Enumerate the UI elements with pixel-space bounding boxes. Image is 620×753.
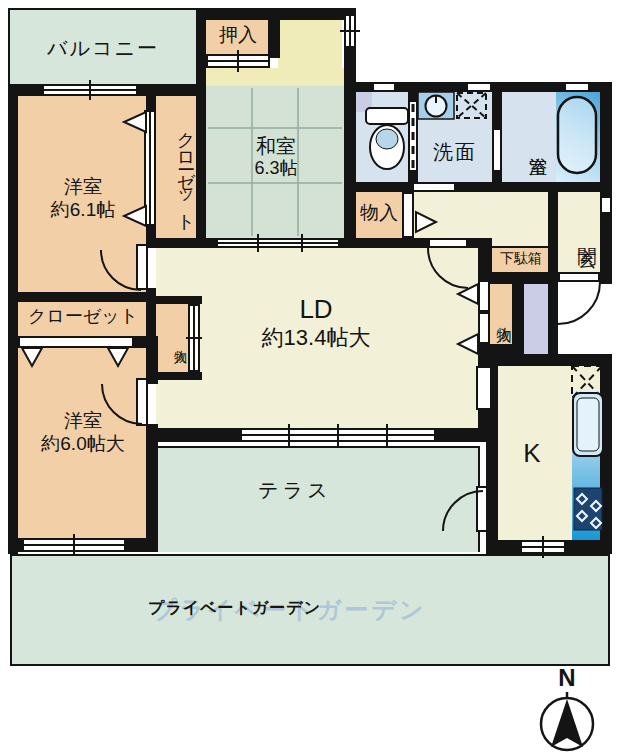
wall [8,84,18,554]
bedroom2-name: 洋室 [20,410,146,433]
living-name: LD [166,294,466,325]
storage-hall-door-symbol [402,192,414,238]
sliding-door-symbol [216,238,340,248]
door-leaf [476,486,488,532]
washroom-label: 洗面 [418,140,492,164]
storage-right-label: 物入 [489,286,513,344]
window-symbol [344,14,356,48]
closet1-label: クローゼット [158,102,196,238]
wall [196,96,206,246]
garden-label: プライベートガーデン [148,598,321,617]
wall [8,292,148,302]
window-symbol [520,540,566,554]
living-label: LD 約13.4帖大 [166,294,466,352]
wall [196,8,206,96]
kitchen-counter [572,390,600,540]
wall [600,82,612,284]
window-symbol [42,84,138,96]
genkan-label: 玄関 [562,198,598,268]
washitsu-label: 和室 6.3帖 [230,134,322,180]
washitsu-name: 和室 [230,134,322,158]
wall [486,354,612,366]
window-symbol [600,196,612,214]
bedroom1-label: 洋室 約6.1帖 [20,176,146,222]
kitchen-opening [476,366,492,410]
bedroom2-size: 約6.0帖大 [20,433,146,456]
window-symbol [466,82,492,92]
wall [478,272,558,284]
entry-door-leaf [558,272,600,282]
bedroom1-size: 約6.1帖 [20,199,146,222]
bedroom1-name: 洋室 [20,176,146,199]
closet2-label: クローゼット [18,306,148,328]
north-arrow [541,692,593,750]
wall [344,182,612,192]
toilet-duct [356,92,372,112]
washitsu-edge-strip [206,68,344,86]
kitchen-label: K [500,438,564,469]
washroom-door-symbol [412,182,456,192]
wall [492,172,502,184]
washitsu-size: 6.3帖 [230,158,322,180]
window-symbol [240,428,436,442]
wall [600,354,612,554]
closet2-door-symbol [18,336,134,348]
north-label: N [553,664,581,693]
floor-plan: バルコニー 押入 和室 6.3帖 洋室 約6.1帖 クローゼット 洗面 浴室 玄… [0,0,620,753]
wall [146,424,158,552]
washroom-area [418,92,492,182]
living-size: 約13.4帖大 [166,325,466,351]
bathroom-door-symbol [492,128,502,172]
terrace-label: テラス [200,478,390,502]
pipe-space [524,284,548,354]
window-symbol [564,82,590,92]
sliding-door-symbol [206,54,270,68]
bedroom2-label: 洋室 約6.0帖大 [20,410,146,456]
window-symbol [372,82,396,92]
getabako-label: 下駄箱 [490,250,552,267]
wall [492,92,502,128]
bathtub-zone [556,92,600,182]
door-leaf [136,244,148,290]
toilet-door-symbol [408,100,418,172]
balcony-label: バルコニー [28,36,178,60]
door-leaf [428,238,468,248]
storage-hall-label: 物入 [356,202,402,225]
window-symbol [22,538,126,552]
bathroom-label: 浴室 [506,106,548,180]
oshiire-label: 押入 [206,24,270,47]
